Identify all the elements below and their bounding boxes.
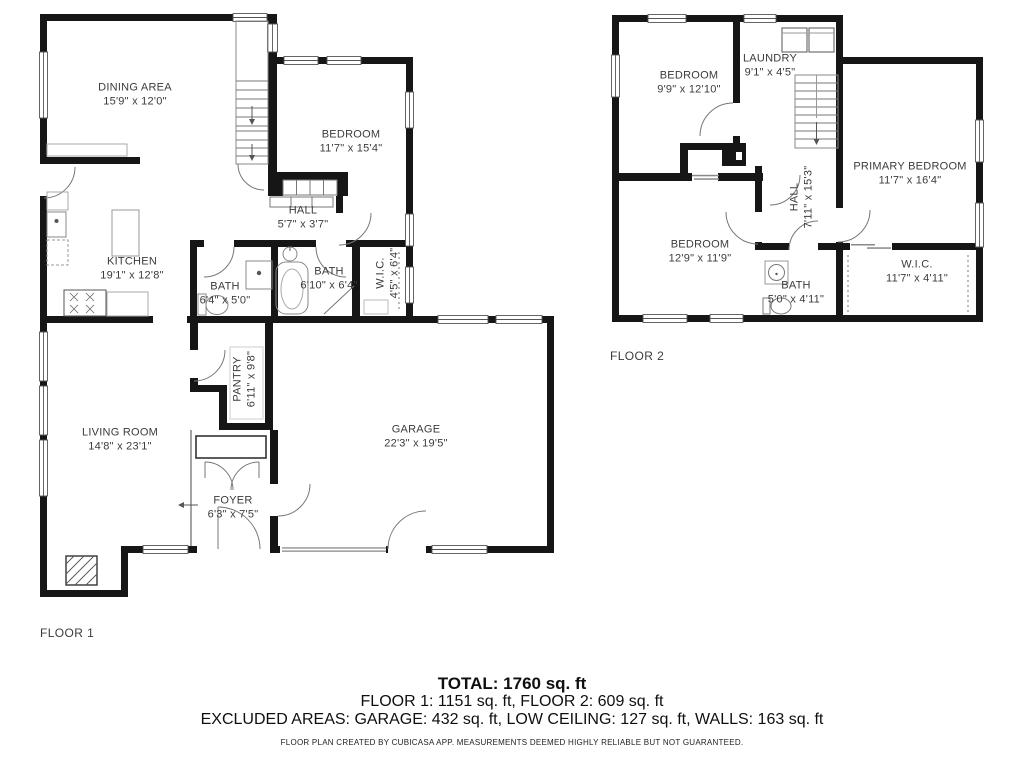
floor2-caption: FLOOR 2 xyxy=(610,349,664,363)
porch-hatch-icon xyxy=(66,556,97,585)
room-name: LAUNDRY xyxy=(743,53,797,67)
room-dims: 19'1" x 12'8" xyxy=(100,269,164,283)
summary-floors: FLOOR 1: 1151 sq. ft, FLOOR 2: 609 sq. f… xyxy=(0,693,1024,711)
dryer-icon xyxy=(809,28,834,52)
room-dims: 11'7" x 4'11" xyxy=(886,272,948,286)
room-dims: 5'0" x 4'11" xyxy=(768,293,824,307)
floor-plan-drawing xyxy=(0,0,1024,768)
room-label-hall-f2: HALL 7'11" x 15'3" xyxy=(789,166,816,229)
floor-plan-page: DINING AREA 15'9" x 12'0" BEDROOM 11'7" … xyxy=(0,0,1024,768)
stairs-icon xyxy=(236,21,268,164)
room-name: PRIMARY BEDROOM xyxy=(853,161,966,175)
room-label-bedroom-bottom-f2: BEDROOM 12'9" x 11'9" xyxy=(669,239,732,266)
summary-excluded: EXCLUDED AREAS: GARAGE: 432 sq. ft, LOW … xyxy=(0,711,1024,729)
room-name: HALL xyxy=(789,166,803,229)
room-label-bedroom-f1: BEDROOM 11'7" x 15'4" xyxy=(320,129,383,156)
room-name: GARAGE xyxy=(384,424,448,438)
room-dims: 12'9" x 11'9" xyxy=(669,252,732,266)
room-label-garage: GARAGE 22'3" x 19'5" xyxy=(384,424,448,451)
summary-disclaimer: FLOOR PLAN CREATED BY CUBICASA APP. MEAS… xyxy=(0,738,1024,747)
stairs2-icon xyxy=(795,75,838,148)
room-label-dining-area: DINING AREA 15'9" x 12'0" xyxy=(98,82,172,109)
room-dims: 4'5" x 6'4" xyxy=(388,248,402,299)
room-label-bath-f2: BATH 5'0" x 4'11" xyxy=(768,280,824,307)
room-label-kitchen: KITCHEN 19'1" x 12'8" xyxy=(100,256,164,283)
room-label-primary-bedroom: PRIMARY BEDROOM 11'7" x 16'4" xyxy=(853,161,966,188)
room-name: BATH xyxy=(768,280,824,294)
room-dims: 14'8" x 23'1" xyxy=(82,440,158,454)
room-dims: 6'4" x 5'0" xyxy=(200,294,251,308)
entry-arrow-icon xyxy=(178,502,198,508)
room-label-bedroom-top-f2: BEDROOM 9'9" x 12'10" xyxy=(657,70,721,97)
bath2-sink-icon xyxy=(283,247,297,261)
room-name: BEDROOM xyxy=(657,70,721,84)
room-label-foyer: FOYER 6'3" x 7'5" xyxy=(208,495,259,522)
kitchen-sink-icon xyxy=(47,212,66,237)
room-name: KITCHEN xyxy=(100,256,164,270)
room-label-hall-f1: HALL 5'7" x 3'7" xyxy=(278,205,329,232)
summary-footer: TOTAL: 1760 sq. ft FLOOR 1: 1151 sq. ft,… xyxy=(0,674,1024,747)
room-name: FOYER xyxy=(208,495,259,509)
room-name: BATH xyxy=(200,281,251,295)
room-name: W.I.C. xyxy=(375,248,389,299)
room-name: W.I.C. xyxy=(886,259,948,273)
room-dims: 9'9" x 12'10" xyxy=(657,83,721,97)
room-label-laundry: LAUNDRY 9'1" x 4'5" xyxy=(743,53,797,80)
room-dims: 7'11" x 15'3" xyxy=(802,166,816,229)
room-dims: 15'9" x 12'0" xyxy=(98,95,172,109)
room-label-pantry: PANTRY 6'11" x 9'8" xyxy=(232,351,259,407)
room-label-living-room: LIVING ROOM 14'8" x 23'1" xyxy=(82,427,158,454)
room-dims: 9'1" x 4'5" xyxy=(743,66,797,80)
room-label-bath-small: BATH 6'4" x 5'0" xyxy=(200,281,251,308)
stove-icon xyxy=(64,290,106,316)
summary-total: TOTAL: 1760 sq. ft xyxy=(0,674,1024,693)
room-name: LIVING ROOM xyxy=(82,427,158,441)
room-dims: 6'11" x 9'8" xyxy=(245,351,259,407)
room-label-wic-f2: W.I.C. 11'7" x 4'11" xyxy=(886,259,948,286)
room-dims: 6'3" x 7'5" xyxy=(208,508,259,522)
room-name: HALL xyxy=(278,205,329,219)
room-dims: 5'7" x 3'7" xyxy=(278,218,329,232)
room-name: PANTRY xyxy=(232,351,246,407)
floor1-caption: FLOOR 1 xyxy=(40,626,94,640)
room-name: BEDROOM xyxy=(320,129,383,143)
room-name: BATH xyxy=(300,266,357,280)
room-dims: 11'7" x 15'4" xyxy=(320,142,383,156)
room-name: BEDROOM xyxy=(669,239,732,253)
room-dims: 6'10" x 6'4" xyxy=(300,279,357,293)
washer-icon xyxy=(782,28,807,52)
room-name: DINING AREA xyxy=(98,82,172,96)
room-label-bath-large: BATH 6'10" x 6'4" xyxy=(300,266,357,293)
room-dims: 11'7" x 16'4" xyxy=(853,174,966,188)
room-dims: 22'3" x 19'5" xyxy=(384,437,448,451)
room-label-wic-f1: W.I.C. 4'5" x 6'4" xyxy=(375,248,402,299)
